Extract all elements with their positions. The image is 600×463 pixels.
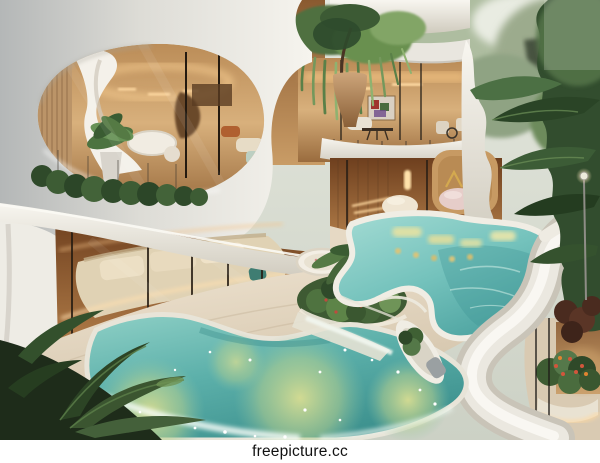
screenshot-root: freepicture.cc	[0, 0, 600, 463]
villa-photo	[0, 0, 600, 440]
watermark-bar: freepicture.cc	[0, 440, 600, 463]
shelf	[192, 84, 232, 106]
watermark-text: freepicture.cc	[252, 444, 348, 460]
haze-overlay	[544, 0, 600, 70]
capsule-lamp	[404, 170, 411, 190]
orange-lounge	[221, 126, 240, 137]
ceiling-light	[392, 83, 422, 86]
side-table	[164, 146, 180, 162]
stone-pouf-highlight	[387, 197, 405, 205]
